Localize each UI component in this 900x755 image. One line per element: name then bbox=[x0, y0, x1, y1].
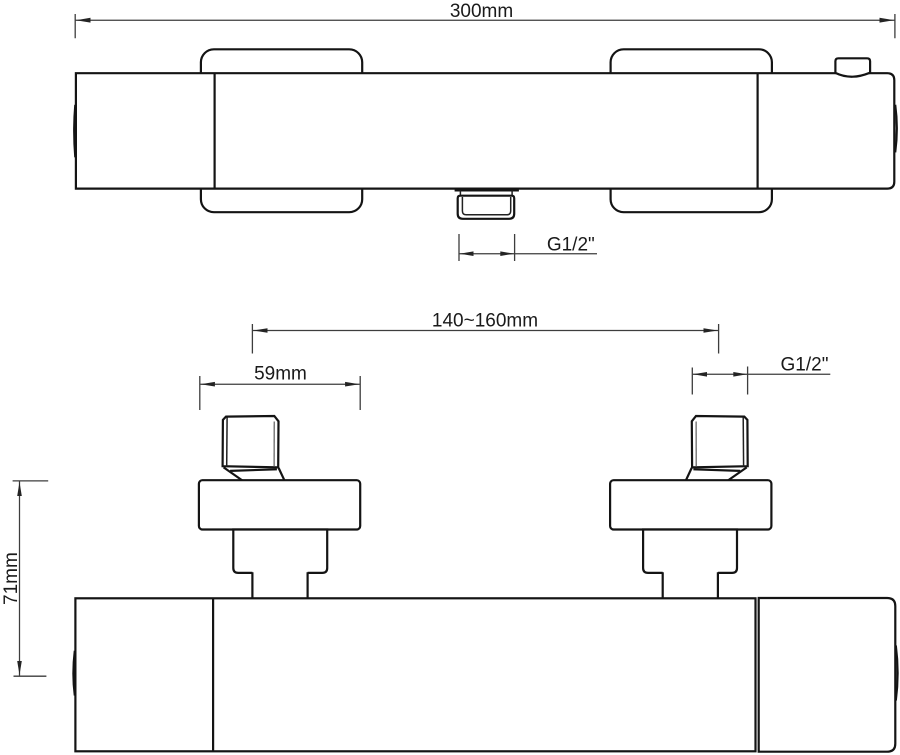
svg-text:G1/2": G1/2" bbox=[781, 354, 829, 375]
svg-text:140~160mm: 140~160mm bbox=[432, 311, 538, 332]
svg-text:59mm: 59mm bbox=[254, 363, 307, 384]
svg-text:300mm: 300mm bbox=[450, 1, 513, 22]
svg-text:G1/2": G1/2" bbox=[547, 234, 595, 255]
svg-text:71mm: 71mm bbox=[1, 552, 22, 605]
